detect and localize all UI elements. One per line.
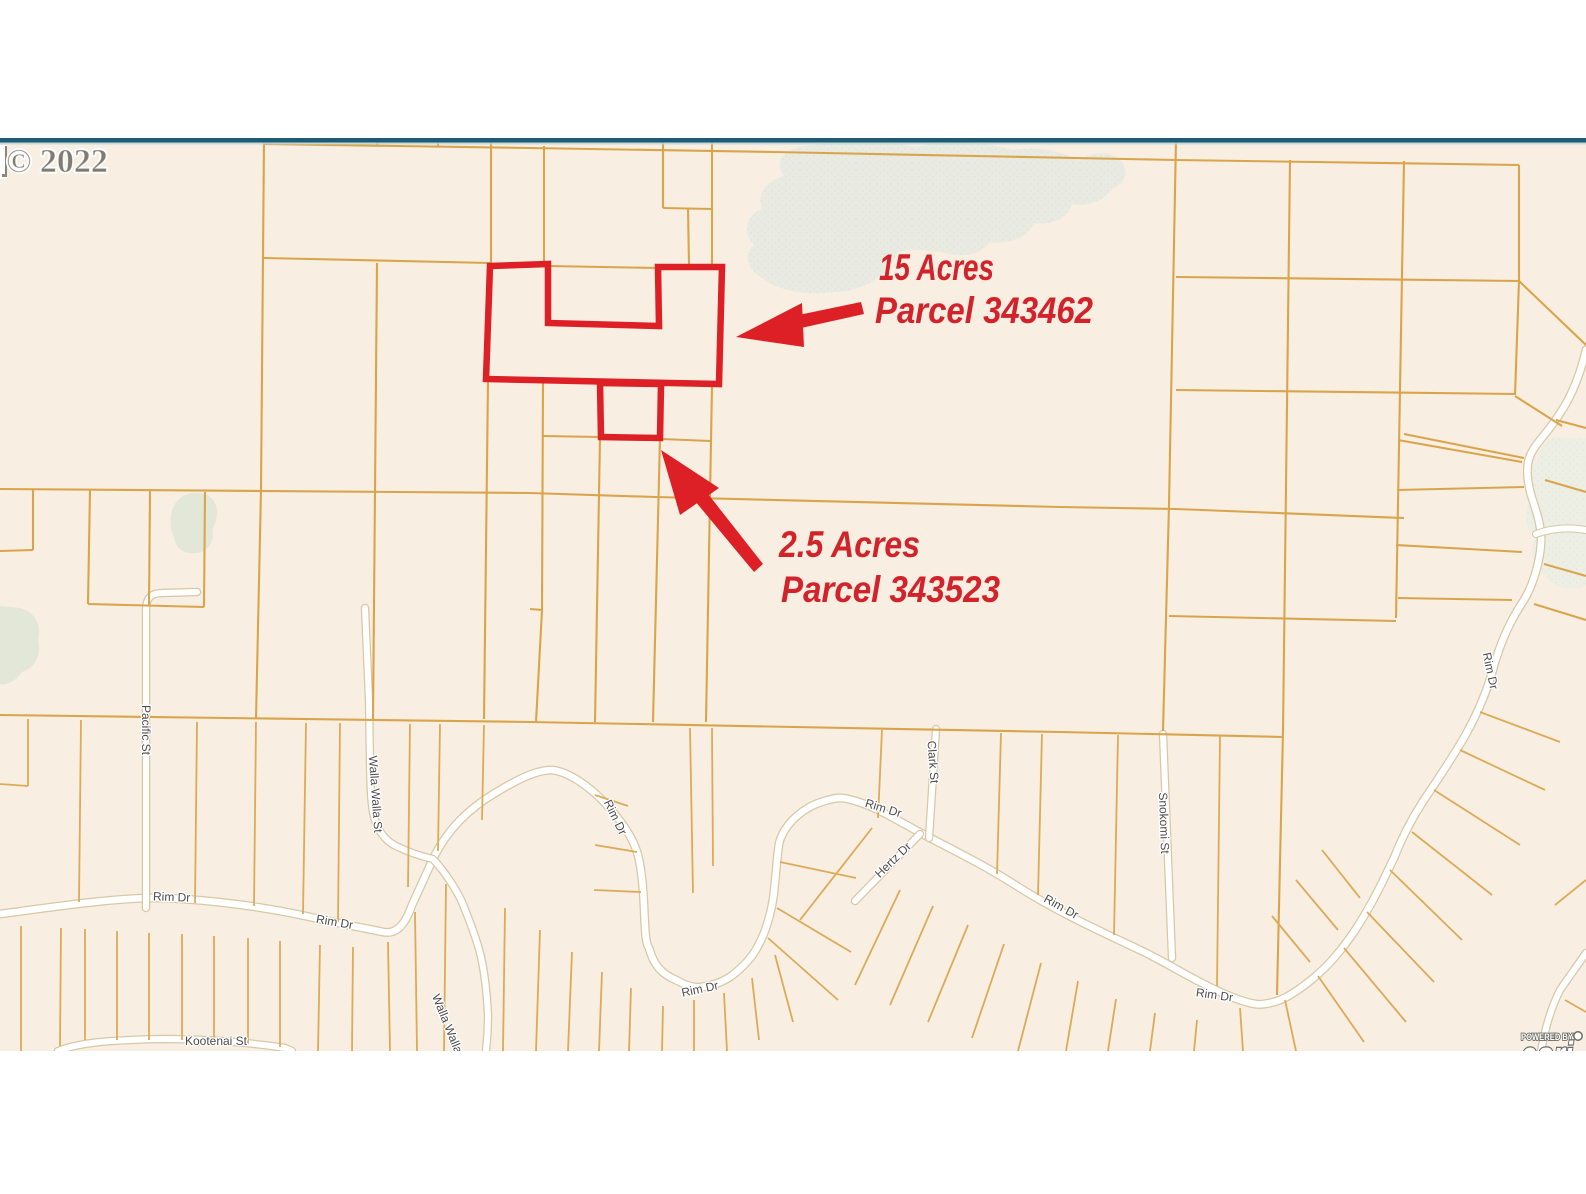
svg-text:Kootenai St: Kootenai St bbox=[185, 1034, 248, 1048]
svg-text:Parcel 343462: Parcel 343462 bbox=[875, 290, 1093, 331]
svg-text:Parcel 343523: Parcel 343523 bbox=[781, 569, 1000, 610]
svg-text:15 Acres: 15 Acres bbox=[879, 247, 994, 288]
svg-text:© 2022: © 2022 bbox=[6, 143, 108, 180]
svg-text:Rim Dr: Rim Dr bbox=[153, 889, 191, 904]
svg-text:Pacific St: Pacific St bbox=[139, 705, 153, 756]
svg-text:Snokomi St: Snokomi St bbox=[1156, 792, 1172, 854]
svg-text:2.5 Acres: 2.5 Acres bbox=[778, 524, 920, 565]
